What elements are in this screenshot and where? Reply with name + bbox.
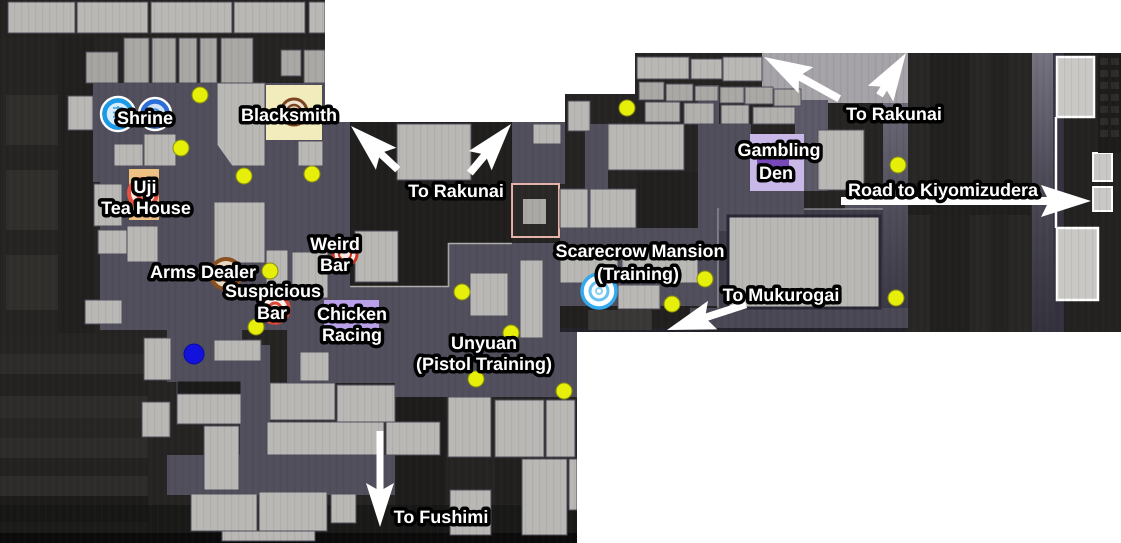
svg-text:Bar: Bar [257,303,287,323]
svg-text:Scarecrow Mansion: Scarecrow Mansion [555,241,724,261]
svg-text:Arms Dealer: Arms Dealer [150,262,256,282]
svg-text:To Rakunai: To Rakunai [408,181,504,201]
svg-text:Road to Kiyomizudera: Road to Kiyomizudera [848,180,1039,200]
svg-text:Uji: Uji [133,177,156,197]
svg-text:Tea House: Tea House [101,198,191,218]
svg-text:(Pistol Training): (Pistol Training) [416,354,552,374]
svg-text:Suspicious: Suspicious [225,281,321,301]
svg-text:Shrine: Shrine [117,108,173,128]
svg-text:Gambling: Gambling [737,140,820,160]
svg-text:Den: Den [759,163,793,183]
svg-text:Unyuan: Unyuan [451,333,517,353]
svg-text:Chicken: Chicken [317,304,387,324]
svg-text:To Fushimi: To Fushimi [394,507,489,527]
svg-text:Blacksmith: Blacksmith [241,105,337,125]
svg-text:Bar: Bar [320,255,350,275]
svg-text:Racing: Racing [322,325,382,345]
svg-text:To Mukurogai: To Mukurogai [723,285,840,305]
svg-text:Weird: Weird [310,234,360,254]
svg-text:(Training): (Training) [597,264,679,284]
svg-text:To Rakunai: To Rakunai [846,104,942,124]
